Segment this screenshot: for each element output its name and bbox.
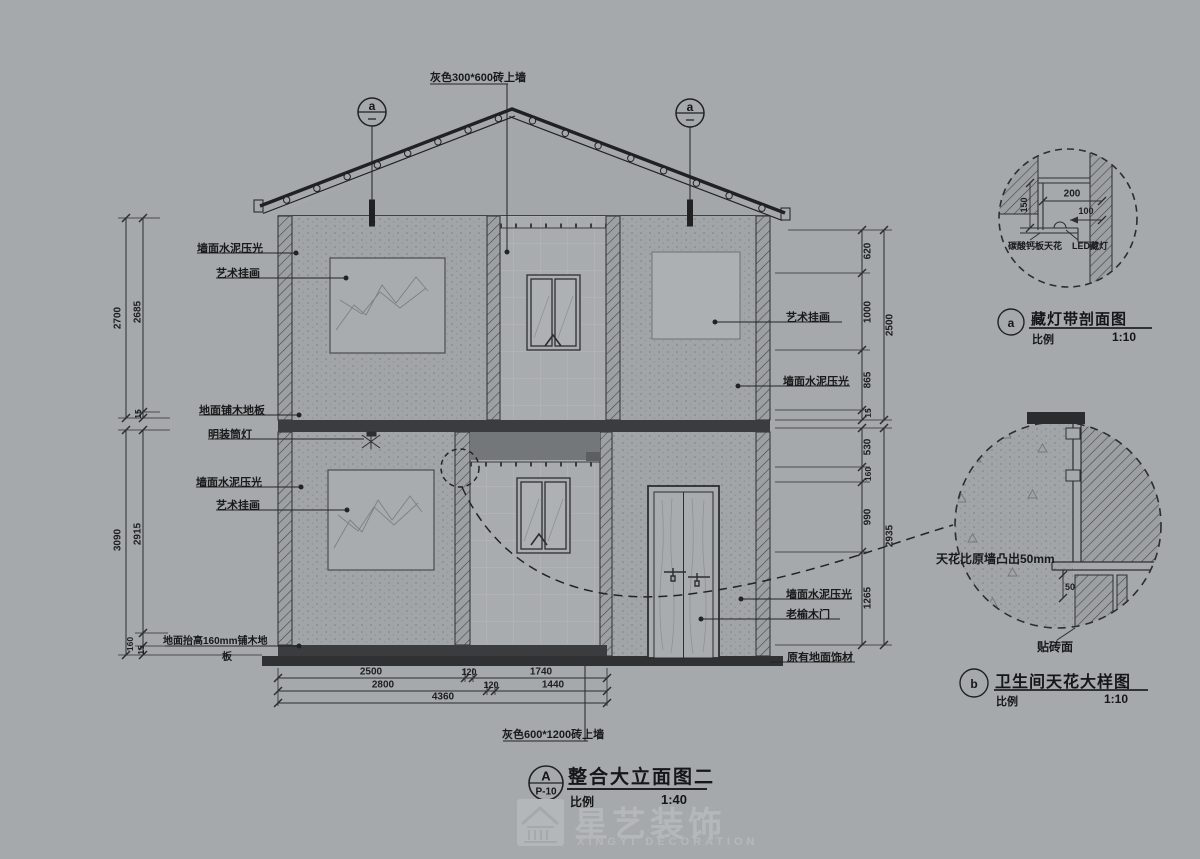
art-frame-2f [330,258,445,353]
note-tile-lower: 灰色600*1200砖上墙 [502,726,604,742]
label-wall-cement-2f-left: 墙面水泥压光 [197,240,263,256]
note-led-strip: LED藏灯 [1072,239,1108,252]
label-original-floor: 原有地面饰材 [787,649,853,665]
label-wall-cement-1f-right: 墙面水泥压光 [786,586,852,602]
label-wall-cement-1f-left: 墙面水泥压光 [196,474,262,490]
dim-bottom-2500: 2500 [360,667,382,678]
art-frame-1f [328,470,434,570]
detail-a-scale-value: 1:10 [1112,330,1136,344]
dim-right-lower-2: 160 [863,467,873,481]
attic [278,112,770,215]
elm-door [648,486,719,658]
dim-right-upper-4: 15 [863,408,873,417]
sheet-title: 整合大立面图二 [568,762,715,789]
window-2f [527,275,580,350]
dim-bottom-120b: 120 [483,680,498,690]
dim-left-lower-gap: 15 [136,645,146,654]
dim-detail-b-50: 50 [1065,582,1075,592]
note-calcium-board: 碳酸钙板天花 [1008,239,1062,252]
blank-frame-2f [652,252,740,339]
dim-bottom-2800: 2800 [372,680,394,691]
dim-right-lower-4: 1265 [863,587,874,609]
dim-right-lower-1: 530 [863,439,874,456]
dim-right-lower-3: 990 [863,509,874,526]
dim-right-upper-1: 620 [863,243,874,260]
detail-a-scale-label: 比例 [1032,331,1054,347]
section-marker-a-left: a [369,99,376,113]
label-raised-floor-1: 地面抬高160mm铺木地 [163,632,267,647]
sheet-number: P-10 [535,787,556,798]
dim-left-lower-total: 3090 [113,529,124,551]
detail-b-scale-label: 比例 [996,693,1018,709]
note-tile-upper: 灰色300*600砖上墙 [430,69,526,85]
dim-right-lower-total: 2935 [885,525,896,547]
dim-left-upper-total: 2700 [113,307,124,329]
note-tile-face: 贴砖面 [1037,638,1073,655]
detail-a-marker: a [1008,316,1015,330]
dim-bottom-1440: 1440 [542,680,564,691]
note-ceiling-protrude: 天花比原墙凸出50mm [936,550,1055,567]
dim-detail-a-100: 100 [1078,206,1093,216]
label-elm-door: 老榆木门 [786,606,830,622]
dim-bottom-1740: 1740 [530,667,552,678]
label-wall-cement-2f-right: 墙面水泥压光 [783,373,849,389]
section-marker-a-right: a [687,100,694,114]
dim-bottom-120a: 120 [461,667,476,677]
dim-detail-a-200: 200 [1064,189,1081,200]
dim-right-upper-total: 2500 [885,314,896,336]
label-art-1f-left: 艺术挂画 [216,497,260,513]
detail-b-marker: b [970,677,977,691]
window-1f [517,478,570,553]
label-art-2f-left: 艺术挂画 [216,265,260,281]
label-art-2f-right: 艺术挂画 [786,309,830,325]
dim-bottom-4360: 4360 [432,692,454,703]
detail-b-title: 卫生间天花大样图 [995,668,1131,692]
detail-a-title: 藏灯带剖面图 [1031,308,1127,329]
dim-left-lower-raise: 160 [125,637,135,651]
watermark-logo-icon [517,799,564,846]
watermark-subtitle: XINGYI DECORATION [577,836,758,848]
dim-detail-a-150: 150 [1019,197,1029,212]
dim-left-upper-gap: 15 [133,409,143,418]
detail-b-scale-value: 1:10 [1104,692,1128,706]
label-raised-floor-2: 板 [222,648,232,663]
label-downlight: 明装筒灯 [208,426,252,442]
drawing-sheet: 灰色300*600砖上墙 灰色600*1200砖上墙 a a 墙面水泥压光 艺术… [0,0,1200,859]
dim-left-lower-main: 2915 [133,523,144,545]
label-wood-floor: 地面铺木地板 [199,402,265,418]
dim-right-upper-3: 865 [863,372,874,389]
dim-right-upper-2: 1000 [863,301,874,323]
sheet-marker: A [541,769,550,784]
dim-left-upper-main: 2685 [133,301,144,323]
